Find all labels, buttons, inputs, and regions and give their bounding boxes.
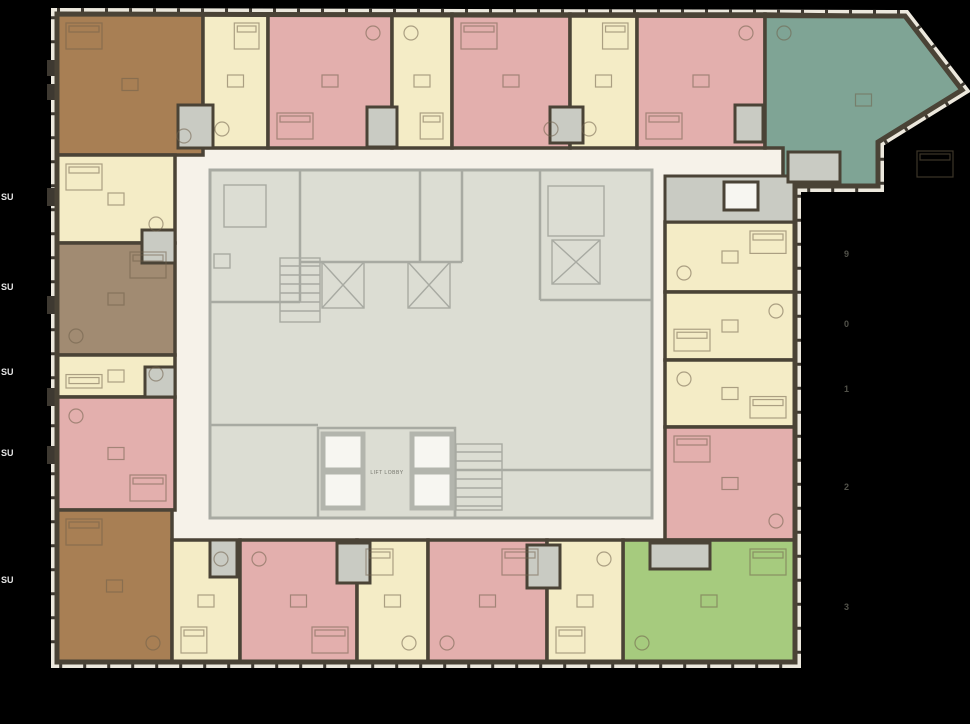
lift-car	[412, 434, 452, 470]
core: LIFT LOBBY	[210, 170, 652, 518]
suite-label-right-3: 1	[844, 384, 849, 394]
unit-bottom-left-brown	[57, 510, 172, 662]
suite-label-right-5: 3	[844, 602, 849, 612]
suite-label-left-2: SU	[1, 282, 14, 292]
lift-car	[323, 434, 363, 470]
suite-label-left-5: SU	[1, 575, 14, 585]
floor-plan-svg: LIFT LOBBY	[0, 0, 970, 724]
lift-car	[412, 472, 452, 508]
suite-label-right-2: 0	[844, 319, 849, 329]
lift-lobby-label: LIFT LOBBY	[370, 470, 403, 476]
unit-right-cream-3	[665, 360, 795, 427]
unit-right-cream-1	[665, 222, 795, 292]
suite-label-left-1: SU	[1, 192, 14, 202]
suite-label-left-4: SU	[1, 448, 14, 458]
unit-right-pink	[665, 427, 795, 540]
floor-plan-screenshot: LIFT LOBBY SU SU SU SU SU 9 0 1 2 3	[0, 0, 970, 724]
lift-car	[323, 472, 363, 508]
unit-right-cream-2	[665, 292, 795, 360]
suite-label-right-4: 2	[844, 482, 849, 492]
suite-label-right-1: 9	[844, 249, 849, 259]
suite-label-left-3: SU	[1, 367, 14, 377]
unit-left-pink	[57, 397, 175, 510]
